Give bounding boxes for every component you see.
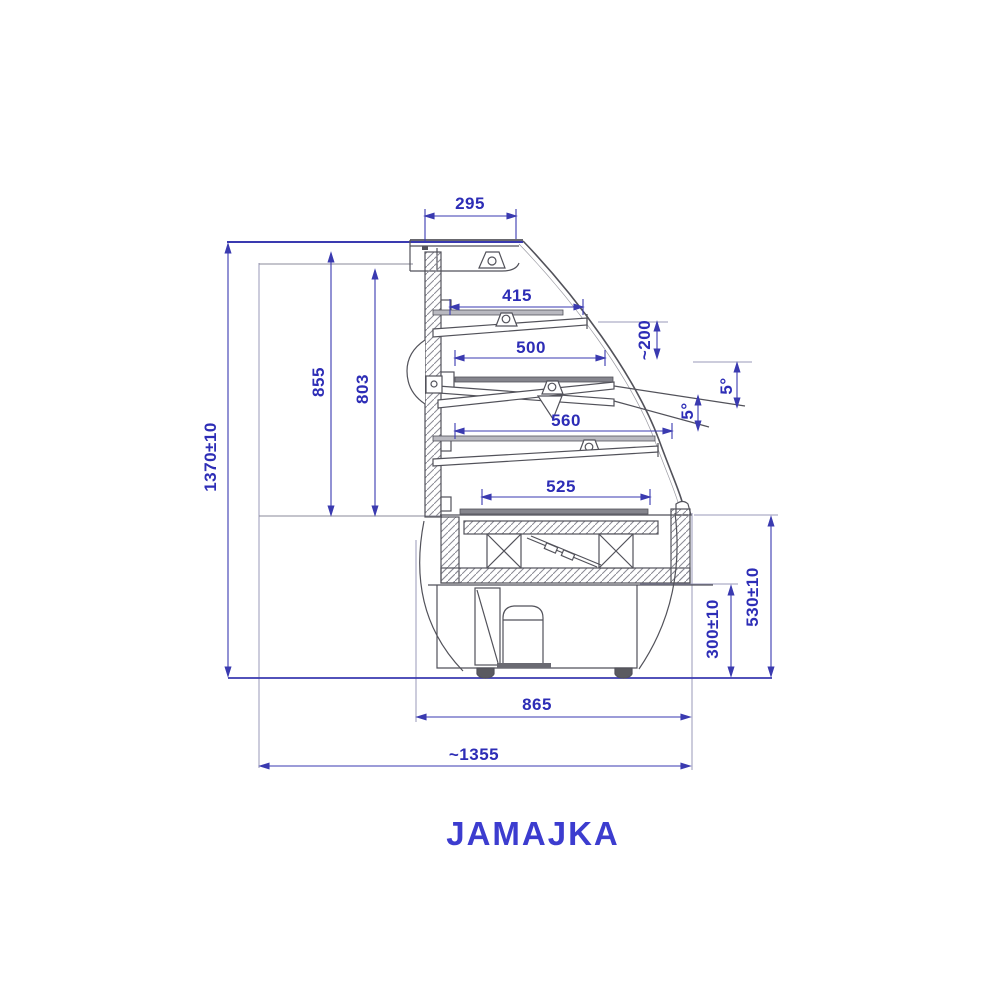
back-wall-duct-bulge <box>407 340 425 404</box>
dim-label-inner-height-a: 855 <box>309 367 329 397</box>
shelf-1 <box>433 310 587 337</box>
foot-right <box>615 668 632 678</box>
cross-brace-left <box>487 534 521 568</box>
dim-label-shelf2-width: 500 <box>516 338 546 358</box>
dim-label-tilt-inner: 5° <box>678 402 698 419</box>
dim-label-base-bottom-height: 300±10 <box>703 599 723 659</box>
cross-brace-right <box>599 534 633 568</box>
dim-label-base-shelf-width: 525 <box>546 477 576 497</box>
dim-label-shelf-spacing: ~200 <box>635 320 655 360</box>
foot-left <box>477 668 494 678</box>
compressor <box>497 606 551 668</box>
dim-label-inner-height-b: 803 <box>353 374 373 404</box>
dim-label-shelf3-width: 560 <box>551 411 581 431</box>
dim-label-base-height: 530±10 <box>743 567 763 627</box>
display-deck <box>440 509 688 515</box>
dim-label-total-height: 1370±10 <box>201 422 221 492</box>
shelf-3 <box>433 436 658 466</box>
evaporator-coil <box>527 536 601 567</box>
dim-label-base-depth: 865 <box>522 695 552 715</box>
dim-label-total-depth: ~1355 <box>449 745 499 765</box>
dim-label-tilt-outer: 5° <box>717 377 737 394</box>
dim-label-shelf1-width: 415 <box>502 286 532 306</box>
refrigerated-well <box>441 509 690 583</box>
shelf-lamp-icon <box>542 381 563 394</box>
canopy-light-icon <box>479 252 505 268</box>
technical-drawing-page: 295 415 500 560 525 ~200 5° 5° 855 803 1… <box>0 0 1000 1000</box>
dim-label-canopy-depth: 295 <box>455 194 485 214</box>
model-title: JAMAJKA <box>446 815 620 853</box>
